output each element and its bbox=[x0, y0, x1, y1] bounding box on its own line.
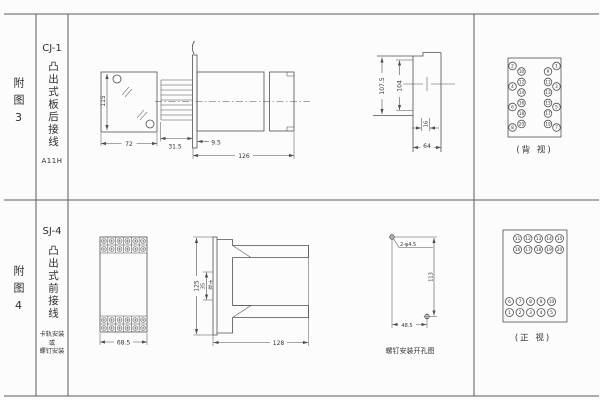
dim-48-5: 48.5 bbox=[401, 323, 412, 329]
terminal-pins bbox=[161, 80, 193, 120]
install-note-line: 螺钉安装 bbox=[35, 348, 69, 357]
center-marks bbox=[403, 77, 455, 91]
dim-107-5: 107.5 bbox=[379, 77, 386, 94]
dim-126: 126 bbox=[238, 153, 250, 160]
dim-113: 113 bbox=[429, 272, 435, 282]
terminal-number: 12 bbox=[519, 80, 525, 85]
case-outline bbox=[217, 240, 233, 334]
rail-label-char: 轨 bbox=[208, 284, 213, 291]
terminal-number: 12 bbox=[525, 236, 531, 242]
sj4-front-terminal-view: 1112131415161718192067891012345 (正 视) bbox=[503, 230, 567, 344]
fig3-row-label: 附图3 bbox=[10, 77, 26, 130]
dim-128: 128 bbox=[273, 340, 285, 347]
front-view-caption: (正 视) bbox=[515, 333, 551, 344]
terminal-number: 7 bbox=[555, 125, 558, 130]
terminal-number: 5 bbox=[550, 310, 553, 316]
terminal-number: 2 bbox=[511, 64, 514, 69]
fig4-row-label: 附图4 bbox=[10, 265, 26, 318]
dim-68-5: 68.5 bbox=[117, 339, 131, 346]
retaining-clip bbox=[192, 41, 194, 54]
terminal-number: 2 bbox=[519, 310, 522, 316]
cj1-panel-cutout-view: 16 64 107.5 104 bbox=[373, 53, 455, 153]
terminal-number: 20 bbox=[519, 122, 525, 127]
fig3-mount-type: 凸出式板后接线 bbox=[46, 61, 61, 149]
drawing-sheet: 115 72 9.5 31.5 126 bbox=[0, 0, 600, 400]
terminal-number: 19 bbox=[546, 247, 552, 253]
terminal-number: 10 bbox=[549, 299, 555, 305]
terminal-number: 14 bbox=[546, 236, 552, 242]
terminal-number: 9 bbox=[547, 69, 550, 74]
hatch-marks bbox=[122, 87, 147, 120]
terminal-number: 6 bbox=[511, 105, 514, 110]
fig4-model: SJ-4 bbox=[36, 226, 68, 237]
terminal-number: 8 bbox=[529, 299, 532, 305]
dim-125: 125 bbox=[194, 280, 201, 292]
terminal-number: 18 bbox=[536, 247, 542, 253]
mount-hole bbox=[146, 120, 154, 128]
drill-caption: 螺钉安装开孔图 bbox=[386, 346, 435, 355]
terminal-number: 16 bbox=[515, 247, 521, 253]
terminal-number: 6 bbox=[508, 299, 511, 305]
terminal-number: 3 bbox=[555, 84, 558, 89]
dim-31-5: 31.5 bbox=[168, 144, 182, 151]
terminal-number: 19 bbox=[545, 122, 551, 127]
dim-64: 64 bbox=[423, 143, 431, 150]
fig3-code: A11H bbox=[36, 157, 68, 165]
terminal-block-rows bbox=[100, 245, 147, 324]
terminal-number: 14 bbox=[519, 90, 525, 95]
dim-35: 35 bbox=[201, 283, 207, 289]
terminal-number: 11 bbox=[515, 236, 521, 242]
fig4-mount-type: 凸出式前接线 bbox=[46, 245, 61, 320]
terminal-number: 15 bbox=[557, 236, 563, 242]
terminal-box bbox=[503, 230, 567, 322]
dim-9-5: 9.5 bbox=[211, 140, 221, 147]
terminal-number: 13 bbox=[545, 90, 551, 95]
terminal-number: 20 bbox=[557, 247, 563, 253]
terminal-number: 4 bbox=[511, 84, 514, 89]
dim-72: 72 bbox=[125, 141, 133, 148]
dim-115: 115 bbox=[100, 95, 107, 107]
table-grid bbox=[4, 14, 599, 396]
terminal-number: 15 bbox=[545, 101, 551, 106]
cj1-back-terminal-view: 2468101214161820911131517191357 (背 视) bbox=[508, 58, 561, 156]
terminal-circles: 1112131415161718192067891012345 bbox=[506, 235, 564, 317]
terminal-number: 10 bbox=[519, 69, 525, 74]
sj4-side-view: 125 35 卡轨 128 bbox=[193, 237, 309, 347]
dim-104: 104 bbox=[397, 80, 404, 92]
back-view-caption: (背 视) bbox=[516, 145, 552, 156]
rail-label-char: 卡 bbox=[208, 279, 213, 286]
sj4-front-view: 68.5 bbox=[100, 237, 147, 346]
rail-label: 卡轨 bbox=[208, 279, 213, 291]
mount-hole bbox=[113, 75, 121, 83]
terminal-number: 17 bbox=[525, 247, 531, 253]
terminal-number: 1 bbox=[555, 64, 558, 69]
terminal-strips bbox=[233, 246, 309, 318]
terminal-number: 4 bbox=[540, 310, 543, 316]
terminal-number: 7 bbox=[519, 299, 522, 305]
install-note-line: 或 bbox=[35, 340, 69, 349]
terminal-circles: 2468101214161820911131517191357 bbox=[509, 62, 561, 131]
fig4-install-note: 卡轨安装 或 螺钉安装 bbox=[35, 331, 69, 357]
front-plate bbox=[213, 237, 217, 335]
terminal-number: 18 bbox=[519, 111, 525, 116]
sj4-drill-view: 2-φ4.5 113 48.5 螺钉安装开孔图 bbox=[386, 234, 438, 355]
terminal-number: 9 bbox=[540, 299, 543, 305]
terminal-number: 16 bbox=[519, 101, 525, 106]
holes-label: 2-φ4.5 bbox=[400, 242, 416, 248]
terminal-number: 3 bbox=[529, 310, 532, 316]
terminal-number: 5 bbox=[555, 105, 558, 110]
terminal-number: 13 bbox=[536, 236, 542, 242]
cj1-front-view: 115 72 bbox=[100, 72, 157, 148]
technical-drawing-svg: 115 72 9.5 31.5 126 bbox=[0, 0, 600, 400]
terminal-screw-grid bbox=[102, 237, 146, 332]
cj1-side-view: 9.5 31.5 126 bbox=[155, 41, 310, 160]
terminal-number: 11 bbox=[545, 80, 551, 85]
wedges bbox=[233, 246, 252, 318]
dim-16: 16 bbox=[424, 121, 430, 127]
terminal-number: 1 bbox=[508, 310, 511, 316]
terminal-number: 8 bbox=[511, 125, 514, 130]
terminal-number: 17 bbox=[545, 111, 551, 116]
fig3-model: CJ-1 bbox=[36, 43, 68, 54]
install-note-line: 卡轨安装 bbox=[35, 331, 69, 340]
